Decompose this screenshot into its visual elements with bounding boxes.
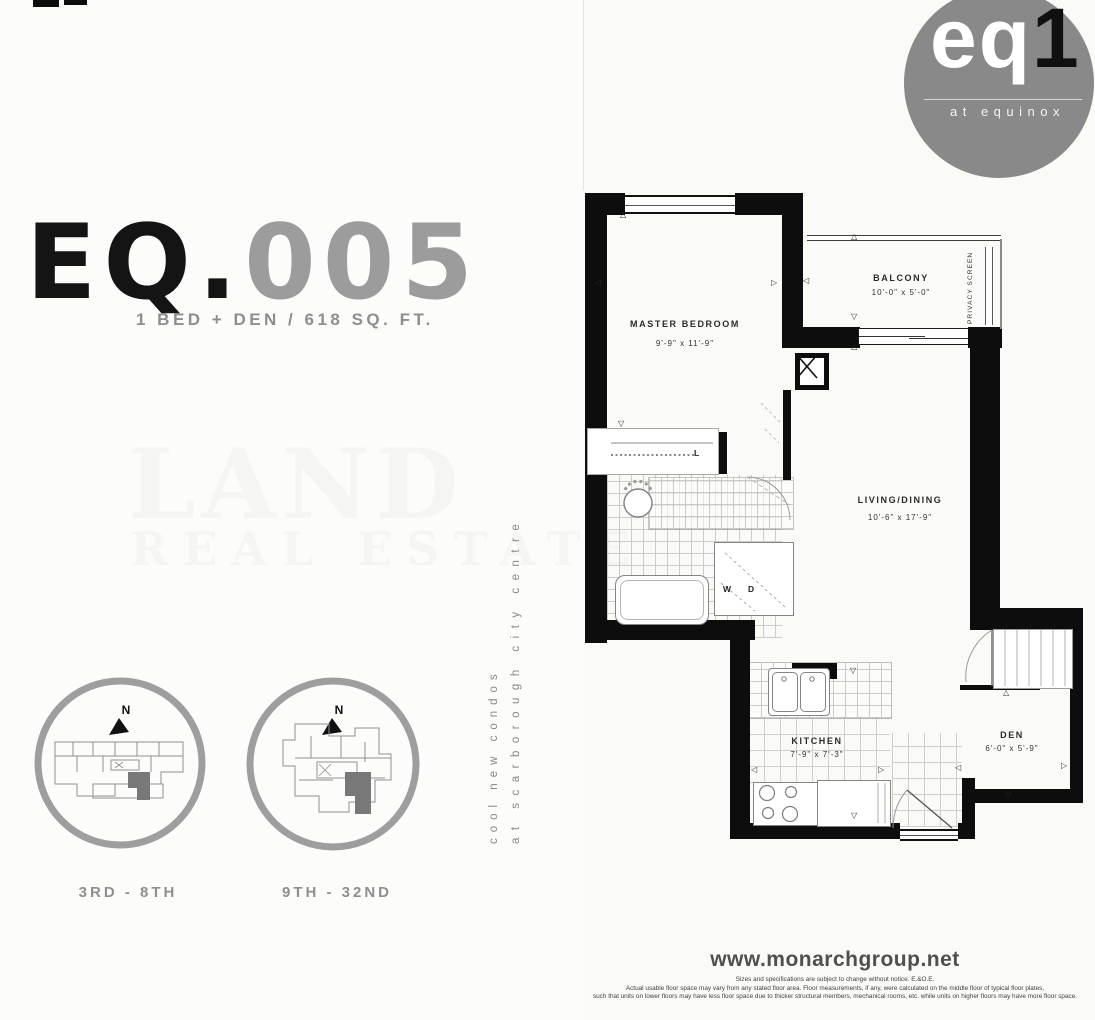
shaft-x-icon [797,355,817,378]
page-fold-line [583,0,584,190]
entry-door-arc [893,790,907,828]
room-dims-living-dining: 10'-6" x 17'-9" [868,513,932,522]
laundry-dashes [721,553,785,611]
floorplan: PRIVACY SCREEN MASTER BEDROOM 9'-9" x 1 [575,185,1090,850]
unit-subtitle: 1 BED + DEN / 618 SQ. FT. [136,310,434,330]
marker-icon: ▽ [851,313,857,321]
marker-icon: ◁ [751,766,757,774]
marker-icon: ▽ [1005,791,1011,799]
room-dims-kitchen: 7'-9" x 7'-3" [790,750,843,759]
room-dims-master-bedroom: 9'-9" x 11'-9" [656,339,714,348]
north-arrow-icon [109,718,129,735]
room-dims-den: 6'-0" x 5'-9" [985,744,1038,753]
disclaimer-line: Sizes and specifications are subject to … [560,976,1095,985]
burner [763,808,774,819]
entry-door [907,790,952,828]
keyplan-ring [38,681,202,845]
burner [760,786,775,801]
den-closet-rails [1005,630,1065,686]
counter-divider [878,783,885,823]
tagline-cool-new-condos: cool new condos [488,668,500,844]
keyplan-9th-32nd: N [245,676,421,852]
logo-eq-text: eq [930,0,1032,85]
unit-title-number: 005 [244,203,480,323]
marker-icon: ◁ [803,277,809,285]
marker-icon: ▷ [878,766,884,774]
room-label-living-dining: LIVING/DINING [858,495,943,505]
faucet-right [810,677,814,681]
marker-icon: ▷ [771,279,777,287]
keyplan-9th-32nd-label: 9TH - 32ND [282,884,392,901]
scan-mark [64,0,87,5]
watermark-line2: REAL ESTATE [130,522,644,576]
tagline-at-scarborough: at scarborough city centre [510,517,522,844]
building-outline [55,742,183,798]
unit-title-prefix: EQ. [26,203,244,323]
room-label-master-bedroom: MASTER BEDROOM [630,319,740,329]
dryer-label: D [748,584,754,594]
unit-title: EQ.005 [26,212,480,315]
den-door-arc [966,630,992,682]
north-arrow-icon [322,718,342,735]
website-url: www.monarchgroup.net [585,948,1085,972]
marker-icon: ▷ [1061,762,1067,770]
marker-icon: △ [1003,689,1009,697]
logo-one-text: 1 [1032,0,1081,85]
burner [786,787,797,798]
keyplan-3rd-8th: N [33,676,207,850]
burner [783,807,798,822]
marker-icon: ▽ [618,420,624,428]
marker-icon: ▽ [851,812,857,820]
keyplan-3rd-8th-label: 3RD - 8TH [79,884,178,901]
washer-label: W [723,584,731,594]
room-label-kitchen: KITCHEN [791,736,842,746]
faucet-left [782,677,786,681]
bathroom-door-dash [747,477,790,505]
highlighted-unit [128,772,150,800]
marker-icon: ◁ [955,764,961,772]
eq1-logo-wordmark: eq1 [930,0,1081,80]
marker-icon: ▽ [850,667,856,675]
bathroom-door-arc [747,477,790,520]
marker-icon: △ [851,233,857,241]
toilet [624,489,652,517]
hall-dashes [761,403,781,443]
room-label-balcony: BALCONY [873,273,929,283]
north-label: N [122,703,131,717]
marker-icon: △ [851,343,857,351]
logo-tagline: at equinox [950,104,1065,119]
marker-icon: ◁ [595,279,601,287]
scan-mark [33,0,59,7]
room-label-den: DEN [1000,730,1024,740]
floorplan-sheet: { "title": { "prefix": "EQ.", "number": … [0,0,1095,1020]
logo-divider-line [924,99,1082,100]
room-dims-balcony: 10'-0" x 5'-0" [872,288,931,297]
disclaimer-line: such that units on lower floors may have… [560,993,1095,1002]
north-label: N [335,703,344,717]
marker-icon: △ [620,211,626,219]
building-outline [283,724,391,812]
linen-closet-label: L [694,448,699,458]
